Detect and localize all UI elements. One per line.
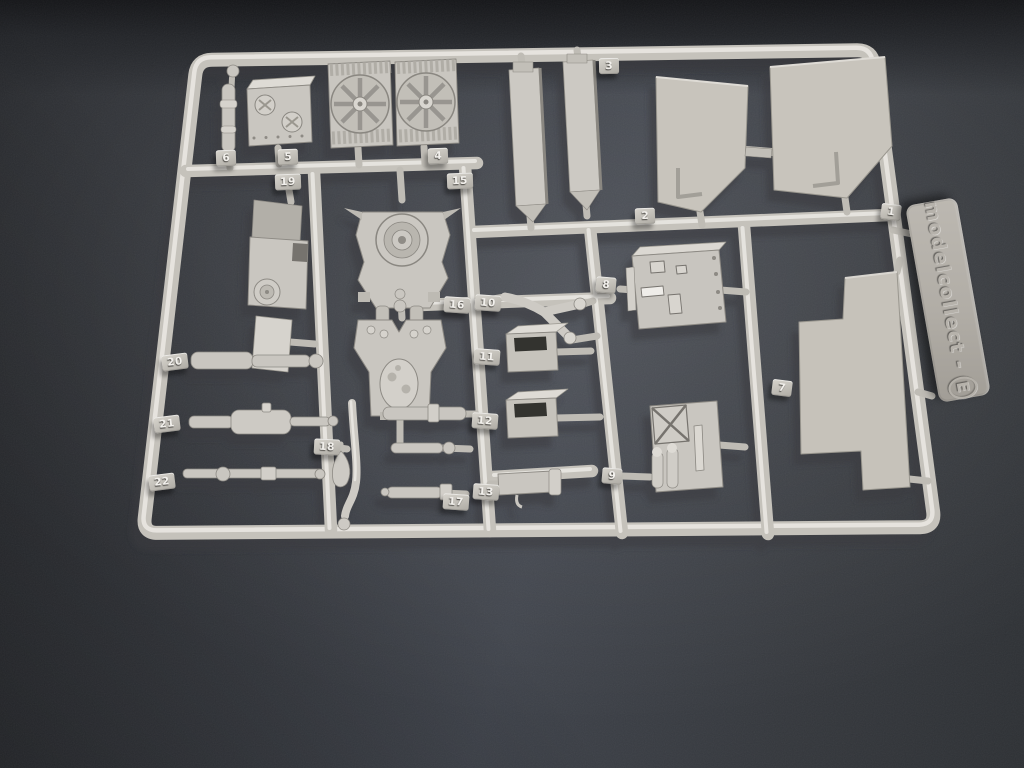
part-number-tag: 2 <box>635 208 656 225</box>
part-number-tag: 4 <box>428 148 449 165</box>
part-number-tag: 18 <box>314 438 341 455</box>
brand-separator: - <box>948 359 971 372</box>
part-number-tag: 17 <box>442 493 469 511</box>
part-number-tag: 5 <box>278 149 299 166</box>
part-number-tag: 1 <box>880 203 902 221</box>
part-number-tag: 12 <box>471 412 498 430</box>
part-number-tag: 20 <box>161 352 189 371</box>
part-number-tag: 10 <box>474 294 501 312</box>
part-number-tag: 3 <box>599 58 619 74</box>
sprue-illustration <box>0 0 1024 768</box>
part-number-tag: 6 <box>216 150 237 167</box>
sprue-letter: E <box>953 380 974 396</box>
part-number-tag: 8 <box>595 276 616 294</box>
part-number-tag: 13 <box>472 483 499 501</box>
part-number-tag: 9 <box>601 467 622 485</box>
part-number-tag: 22 <box>148 472 176 491</box>
part-number-tag: 7 <box>771 379 793 397</box>
part-number-tag: 19 <box>275 174 302 191</box>
part-number-tag: 15 <box>447 173 474 190</box>
photo-canvas: 1 2 3 4 5 6 7 8 9 10 11 12 13 15 16 17 1… <box>0 0 1024 768</box>
part-number-tag: 16 <box>443 296 470 314</box>
part-number-tag: 21 <box>153 414 181 433</box>
part-number-tag: 11 <box>473 348 500 366</box>
